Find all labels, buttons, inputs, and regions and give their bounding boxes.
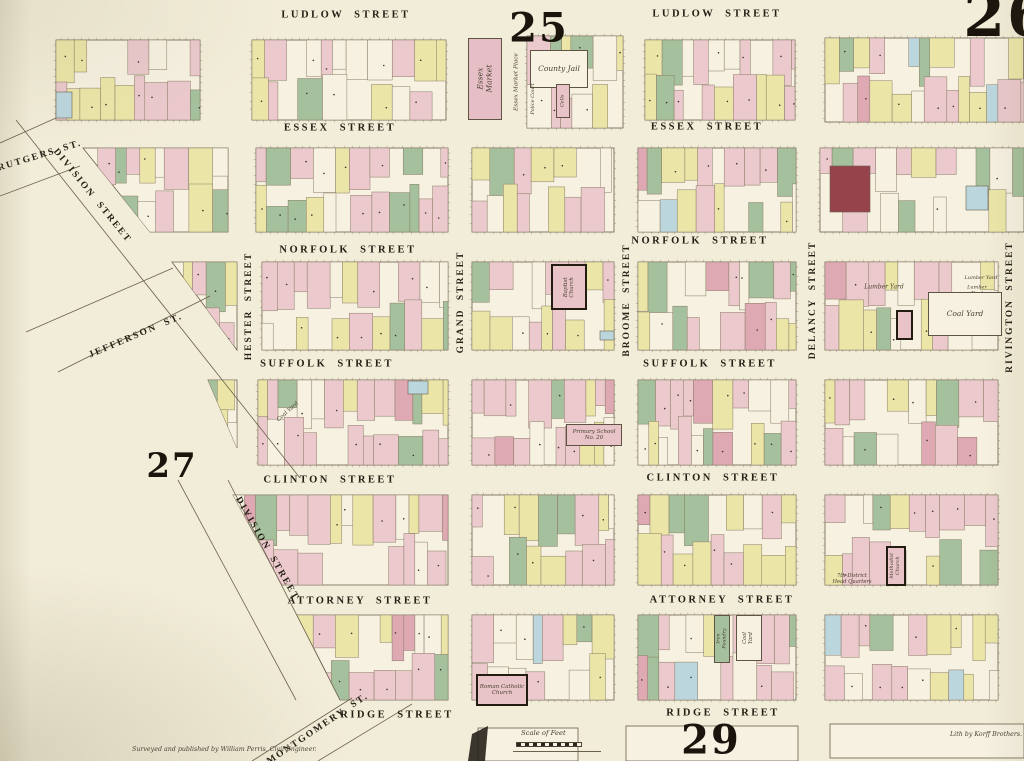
landmark-methodist-church: Methodist Church [886, 546, 906, 586]
street-label-norfolk-street-e: NORFOLK STREET [631, 236, 768, 247]
landmark-label-methodist-church: Methodist Church [890, 553, 902, 579]
landmark-label-coal-yard-s: Coal Yard [743, 626, 755, 650]
street-label-suffolk-street-w: SUFFOLK STREET [260, 359, 394, 370]
street-label-norfolk-street-w: NORFOLK STREET [279, 245, 416, 256]
street-label-attorney-street-e: ATTORNEY STREET [650, 595, 795, 606]
plate-number-27: 27 [146, 446, 197, 486]
landmark-iron-foundry: Iron Foundry [714, 615, 730, 663]
scale-label: Scale of Feet [521, 729, 566, 737]
street-label-ludlow-street-w: LUDLOW STREET [281, 10, 410, 21]
scale-bar-graphic [516, 742, 582, 747]
landmark-baptist-church: Baptist Church [551, 264, 587, 310]
street-label-jefferson-st: JEFFERSON ST. [88, 312, 185, 361]
map-page: LUDLOW STREETLUDLOW STREETESSEX STREETES… [0, 0, 1024, 761]
plate-number-25: 25 [509, 5, 569, 52]
landmark-coal-yard-s: Coal Yard [736, 615, 762, 661]
landmark-coal-yard-w: Coal Yard [276, 401, 300, 424]
landmark-label-essex-market: Essex Market [476, 63, 493, 95]
street-label-ridge-street-w: RIDGE STREET [340, 710, 453, 721]
street-label-essex-street-e: ESSEX STREET [651, 122, 763, 133]
street-label-essex-street-w: ESSEX STREET [284, 123, 396, 134]
street-label-grand-street: GRAND STREET [456, 251, 466, 354]
landmark-label-coal-yard-e: Coal Yard [947, 310, 984, 319]
landmark-label-iron-foundry: Iron Foundry [716, 629, 727, 649]
landmark-essex-market-place: Essex Market Place [514, 53, 521, 111]
street-label-delancy-street: DELANCY STREET [808, 241, 818, 360]
street-label-hester-street: HESTER STREET [244, 252, 254, 360]
plate-number-29: 29 [681, 717, 741, 761]
landmark-county-jail: County Jail [530, 50, 588, 88]
landmark-roman-catholic-church: Roman Catholic Church [476, 674, 528, 706]
lithographer-credit: Lith by Korff Brothers. [950, 731, 1022, 738]
street-label-division-street-upper: DIVISION STREET [51, 147, 133, 245]
landmark-cells: Cells [556, 84, 570, 118]
street-label-ludlow-street-e: LUDLOW STREET [652, 9, 781, 20]
street-label-suffolk-street-e: SUFFOLK STREET [643, 359, 777, 370]
landmark-essex-market: Essex Market [468, 38, 502, 120]
landmark-primary-school: Primary School No. 20 [566, 424, 622, 446]
landmark-label-cells: Cells [560, 95, 566, 108]
landmark-coal-yard-e: Coal Yard [928, 292, 1002, 336]
street-label-broome-street: BROOME STREET [622, 243, 632, 356]
landmark-label-county-jail: County Jail [538, 65, 580, 74]
street-label-clinton-street-w: CLINTON STREET [264, 475, 397, 486]
street-label-division-street-lower: DIVISION STREET [233, 495, 301, 602]
surveyor-credit: Surveyed and published by William Perris… [132, 746, 317, 753]
landmark-lumber-yard-e1: Lumber Yard [965, 276, 998, 282]
landmark-label-primary-school: Primary School No. 20 [573, 429, 616, 442]
landmark-mission-church [896, 310, 913, 340]
map-labels-layer: LUDLOW STREETLUDLOW STREETESSEX STREETES… [0, 0, 1024, 761]
street-label-attorney-street-w: ATTORNEY STREET [288, 596, 433, 607]
landmark-label-baptist-church: Baptist Church [563, 277, 576, 298]
landmark-district-hq: 7th District Head Quarters [832, 574, 871, 586]
street-label-rivington-street: RIVINGTON STREET [1005, 241, 1015, 373]
landmark-label-roman-catholic-church: Roman Catholic Church [480, 684, 524, 697]
landmark-police-court: Police Court [531, 83, 537, 114]
landmark-lumber-yard-w: Lumber Yard [864, 285, 904, 292]
plate-number-26: 26 [963, 0, 1024, 51]
street-label-clinton-street-e: CLINTON STREET [647, 473, 780, 484]
